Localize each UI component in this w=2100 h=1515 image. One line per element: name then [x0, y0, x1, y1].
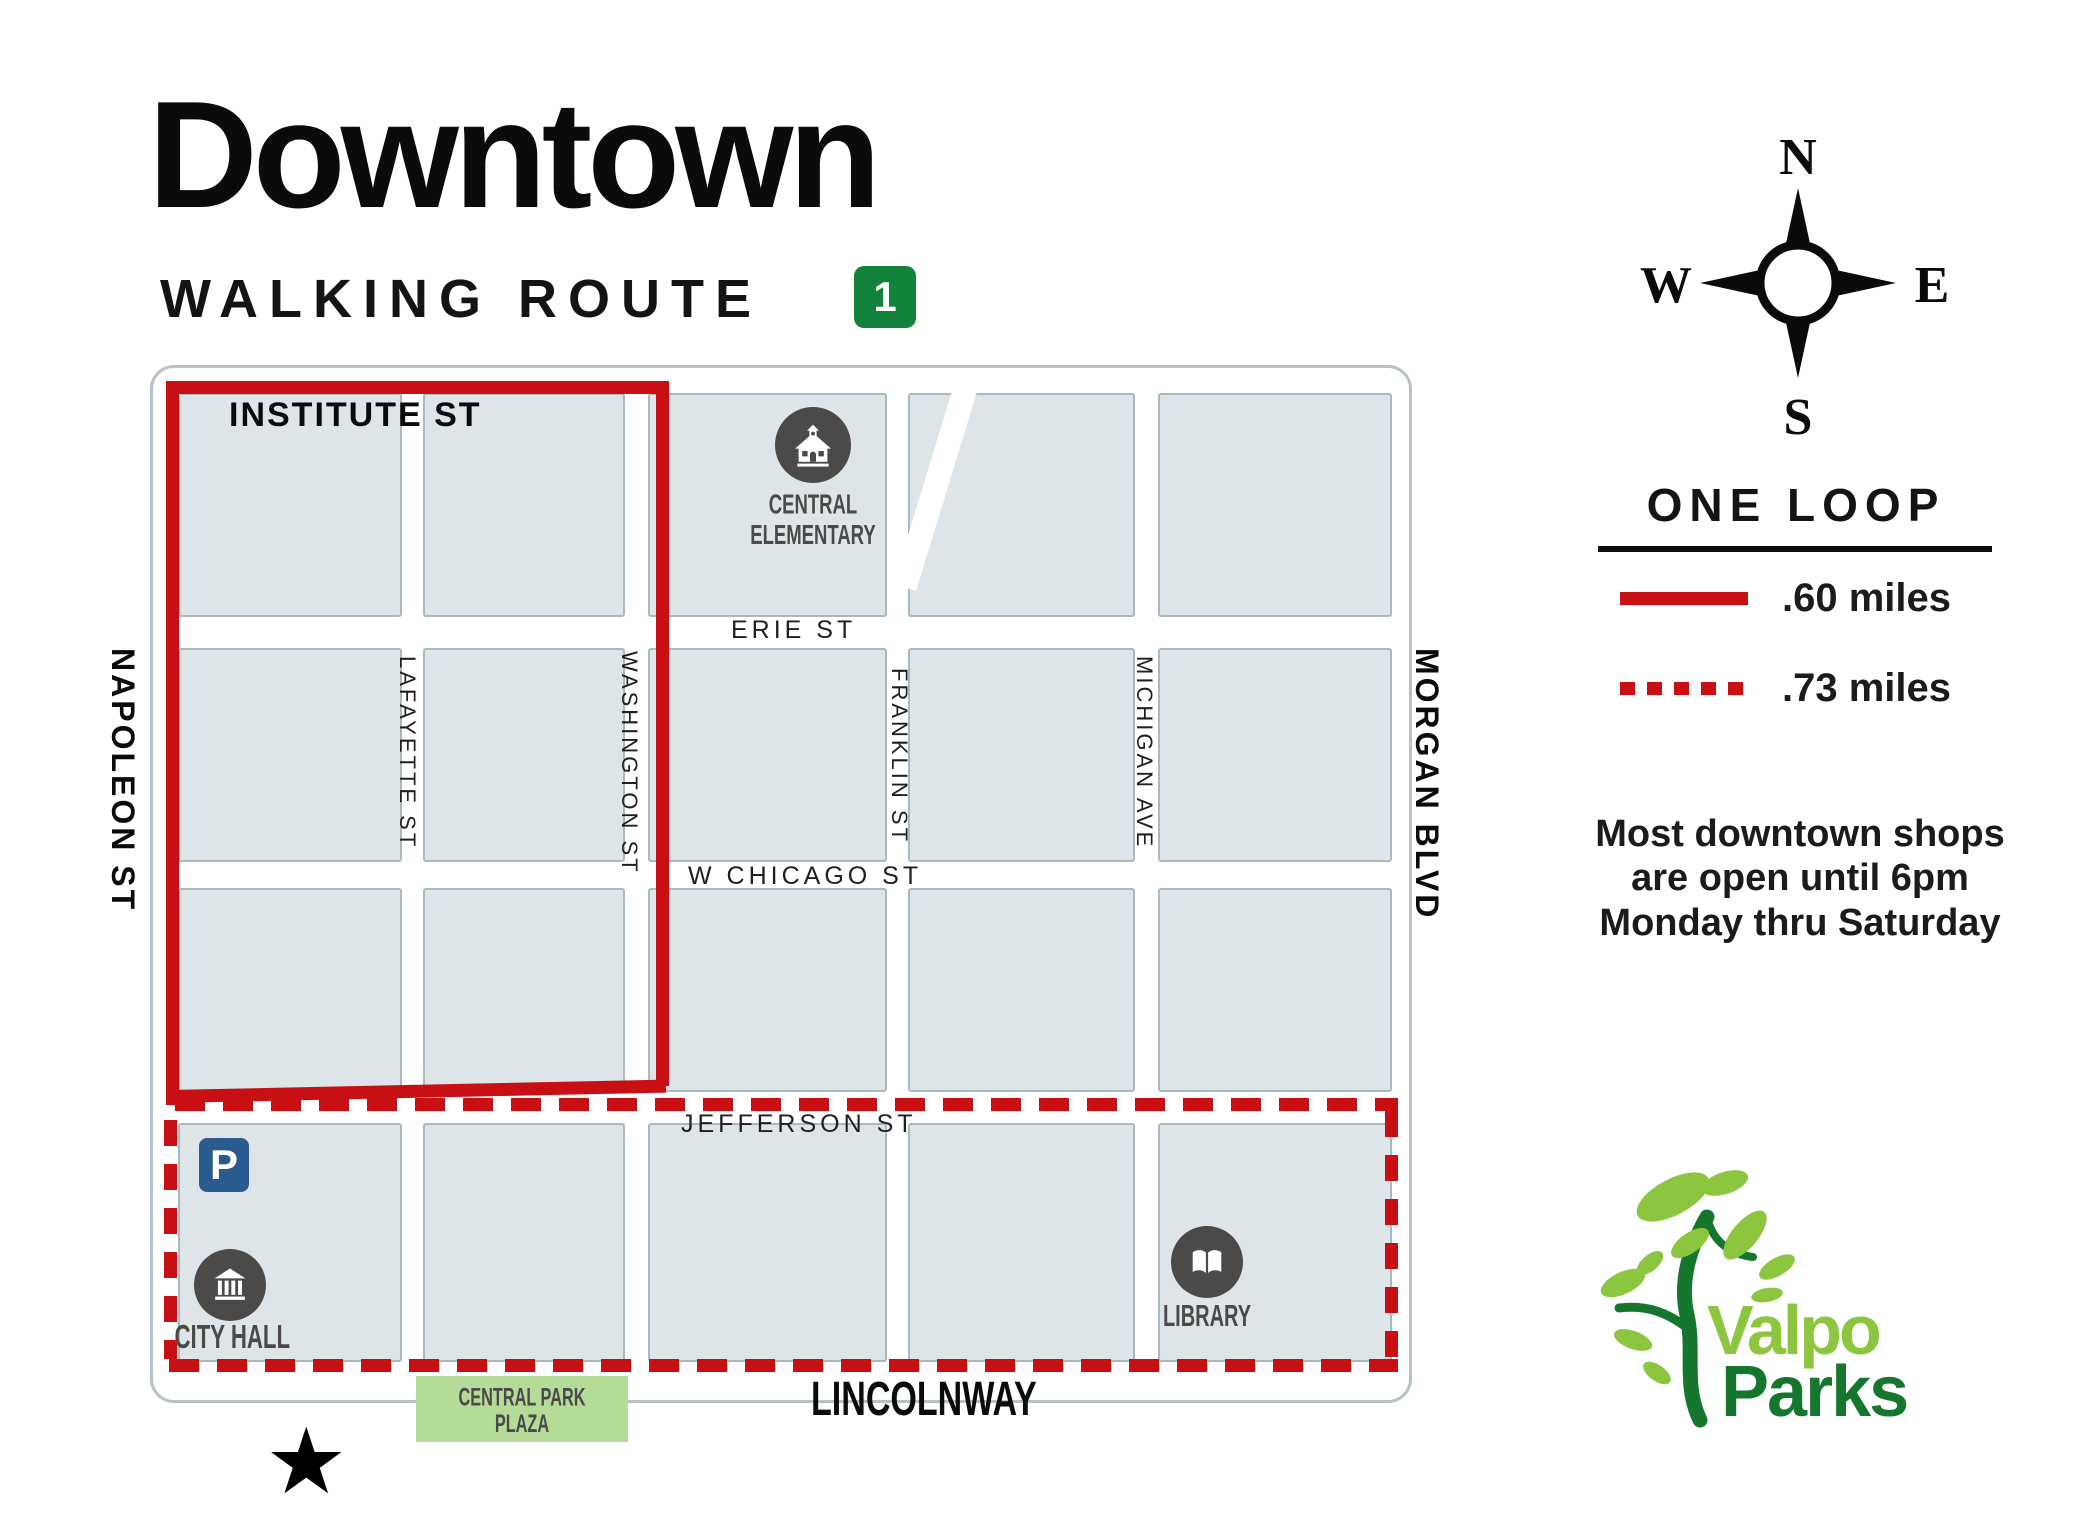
route-dashed-lincolnway-segment — [169, 1359, 1398, 1372]
legend-solid-line-label: .60 miles — [1782, 576, 1951, 621]
note-line-2: are open until 6pm — [1575, 856, 2025, 900]
note-line-1: Most downtown shops — [1575, 812, 2025, 856]
route-solid-washington-segment — [656, 381, 669, 1086]
note-line-3: Monday thru Saturday — [1575, 901, 2025, 945]
logo-word-parks: Parks — [1721, 1351, 1907, 1433]
school-label: CENTRAL ELEMENTARY — [739, 490, 887, 550]
shops-hours-note: Most downtown shops are open until 6pm M… — [1575, 812, 2025, 945]
government-building-icon — [208, 1263, 252, 1307]
compass-south-label: S — [1758, 388, 1838, 447]
open-book-icon — [1185, 1240, 1229, 1284]
street-label-washington: WASHINGTON ST — [616, 651, 642, 875]
parking-icon: P — [199, 1138, 249, 1192]
street-label-jefferson: JEFFERSON ST — [681, 1110, 917, 1139]
compass-north-label: N — [1758, 128, 1838, 187]
schoolhouse-icon — [789, 421, 837, 469]
central-park-plaza: CENTRAL PARK PLAZA — [416, 1376, 628, 1442]
route-solid-napoleon-segment — [166, 381, 179, 1105]
street-label-erie: ERIE ST — [731, 616, 856, 645]
compass-rose: N S W E — [1630, 130, 1970, 460]
street-label-franklin: FRANKLIN ST — [886, 668, 912, 844]
city-block — [908, 1123, 1135, 1362]
valpo-parks-logo: Valpo Parks — [1595, 1155, 2055, 1485]
plaza-label-line2: PLAZA — [444, 1411, 601, 1438]
walking-route-map: INSTITUTE ST ERIE ST W CHICAGO ST JEFFER… — [150, 365, 1412, 1403]
central-park-plaza-label: CENTRAL PARK PLAZA — [444, 1384, 601, 1437]
plaza-label-line1: CENTRAL PARK — [444, 1384, 601, 1411]
street-label-w-chicago: W CHICAGO ST — [688, 862, 922, 891]
street-label-lincolnway: LINCOLNWAY — [811, 1370, 1037, 1427]
street-label-michigan: MICHIGAN AVE — [1131, 656, 1157, 849]
city-block — [1158, 648, 1392, 862]
legend-underline — [1598, 546, 1992, 552]
compass-west-label: W — [1636, 256, 1696, 315]
city-hall-label: CITY HALL — [175, 1320, 286, 1356]
city-block — [648, 648, 887, 862]
legend-heading: ONE LOOP — [1600, 478, 1992, 532]
school-label-line2: ELEMENTARY — [739, 520, 887, 550]
city-block — [908, 648, 1135, 862]
compass-east-label: E — [1902, 256, 1962, 315]
legend-dashed-line-label: .73 miles — [1782, 666, 1951, 711]
school-label-line1: CENTRAL — [739, 490, 887, 520]
route-number-badge: 1 — [854, 266, 916, 328]
library-label: LIBRARY — [1155, 1300, 1259, 1333]
parking-letter: P — [210, 1141, 238, 1189]
route-solid-institute-segment — [166, 381, 669, 394]
city-block — [423, 888, 625, 1092]
route-number: 1 — [873, 273, 896, 321]
city-block — [178, 888, 402, 1092]
street-label-lafayette: LAFAYETTE ST — [394, 656, 420, 849]
route-dashed-napoleon-segment — [164, 1120, 177, 1359]
city-block — [648, 888, 887, 1092]
city-block — [908, 888, 1135, 1092]
page-title: Downtown — [148, 68, 876, 243]
route-dashed-jefferson-segment — [175, 1098, 1398, 1111]
city-hall-icon — [194, 1249, 266, 1321]
city-block — [648, 1123, 887, 1362]
library-icon — [1171, 1226, 1243, 1298]
city-block — [178, 648, 402, 862]
route-start-star: ★ — [265, 1416, 347, 1508]
legend-dashed-line-swatch — [1620, 682, 1748, 695]
legend-solid-line-swatch — [1620, 592, 1748, 605]
street-label-napoleon: NAPOLEON ST — [104, 648, 141, 912]
page-subtitle: WALKING ROUTE — [160, 268, 762, 330]
street-label-morgan: MORGAN BLVD — [1408, 648, 1445, 920]
city-block — [1158, 888, 1392, 1092]
street-label-institute: INSTITUTE ST — [229, 396, 482, 435]
school-icon — [775, 407, 851, 483]
city-block — [423, 1123, 625, 1362]
route-dashed-morgan-segment — [1385, 1111, 1398, 1363]
city-block — [423, 648, 625, 862]
city-block — [1158, 393, 1392, 617]
